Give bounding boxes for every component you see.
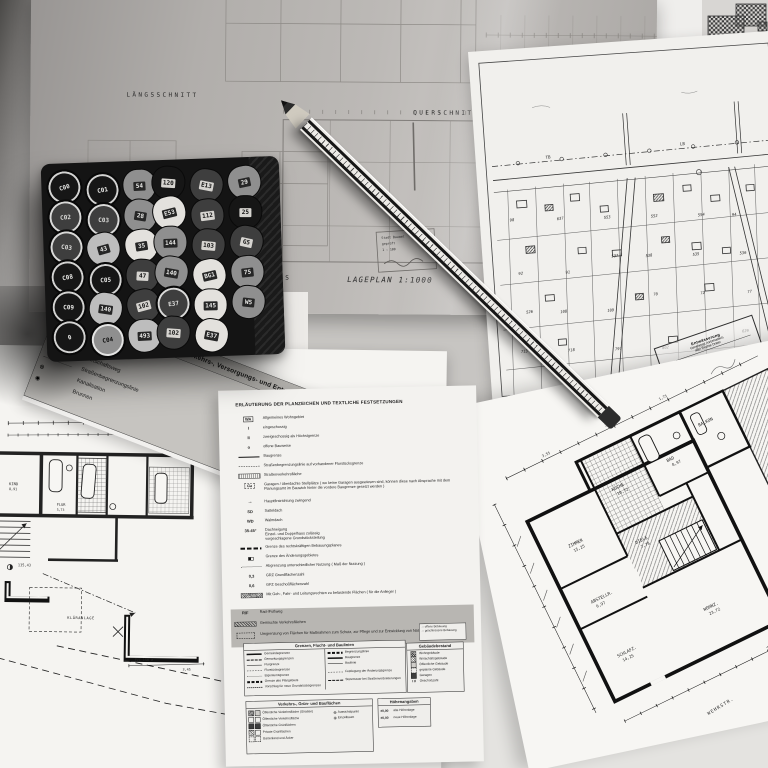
legend-label: Allgemeines Wohngebiet bbox=[263, 415, 305, 420]
minibox-bebauung: → offene Bebauung→ geschlossene Bebauung bbox=[419, 623, 466, 641]
legend-label: GFZ Geschoßflächenzahl bbox=[266, 582, 309, 587]
legend-label-line: Rad-/Fußweg bbox=[260, 609, 283, 614]
legend-label: Walmdach bbox=[265, 518, 283, 523]
parcel-number: 77 bbox=[747, 288, 753, 294]
parcel-number: 108 bbox=[560, 308, 568, 314]
grenzen-row: Stützmauer bei Straßenverbreiterungen bbox=[325, 676, 405, 683]
parcel-number: 535 bbox=[692, 251, 700, 257]
parcel-number: 70 bbox=[653, 291, 659, 297]
parcel-number: 538 bbox=[645, 252, 653, 258]
legend-label-line: Straßenverkehrsfläche bbox=[264, 472, 302, 477]
legend-symbol bbox=[237, 564, 266, 568]
parcel-number: 552 bbox=[651, 213, 659, 219]
legend-label-line: eingeschossig bbox=[263, 425, 287, 430]
legend-label-line: Satteldach bbox=[265, 508, 283, 513]
legend-symbol bbox=[234, 454, 263, 458]
legend-label: Abgrenzung unterschiedlicher Nutzung ( M… bbox=[266, 562, 365, 568]
legend-label-line: GRZ Grundflächenzahl bbox=[266, 572, 304, 577]
legend-label-line: Walmdach bbox=[265, 518, 283, 523]
legend-label-line: Grenze des rechtskräftigen Bebauungsplan… bbox=[265, 543, 341, 549]
legend-label-line: Allgemeines Wohngebiet bbox=[263, 415, 305, 420]
legend-label: eingeschossig bbox=[263, 425, 287, 430]
legend-symbol: WD bbox=[236, 518, 265, 524]
parcel-number: 554 bbox=[698, 211, 706, 217]
pipe-length: 3,45 bbox=[182, 668, 190, 672]
legend-label-line: Straßenbegrenzungslinie auf vorhandener … bbox=[264, 461, 364, 468]
table-gebaeudebestand: Gebäudebestand WohngebäudeWirtschaftsgeb… bbox=[406, 642, 464, 693]
sheet-legend: ERLÄUTERUNG DER PLANZEICHEN UND TEXTLICH… bbox=[218, 385, 484, 766]
marker-cap: C04 bbox=[87, 319, 129, 361]
street-name: WEHRSTR. bbox=[706, 696, 735, 717]
legend-symbol: 35-45° bbox=[236, 528, 265, 534]
parcel-number: 109 bbox=[607, 307, 615, 313]
table-grenzen: Grenzen, Flucht- und Baulinien Gemeindeg… bbox=[243, 640, 406, 696]
legend-symbol bbox=[231, 632, 260, 639]
legend-label-line: Baugrenze bbox=[263, 453, 281, 458]
table-verkehr: Verkehrs-, Grün- und Bauflächen Öffentli… bbox=[246, 699, 374, 755]
legend-symbol bbox=[235, 473, 264, 479]
hoehen-row: ±0,00neue Höhenlage bbox=[380, 713, 428, 721]
legend-label: Hauptfirstrichtung zwingend bbox=[264, 498, 310, 503]
parcel-number: 537 bbox=[611, 253, 619, 259]
table-hoehen: Höhenangaben ±0,00alte Höhenlage±0,00neu… bbox=[378, 697, 432, 727]
klaeranlage-label: KLÄRANLAGE bbox=[67, 615, 95, 620]
legend-label-line: zweigeschossig als Höchstgrenze bbox=[263, 434, 319, 440]
photo-architect-desk: { "top_sheet": { "label_laengsschnitt": … bbox=[0, 0, 768, 768]
legend-label: Gemischte Verkehrsflächen bbox=[260, 620, 306, 625]
legend-label-line: Abgrenzung unterschiedlicher Nutzung ( M… bbox=[266, 562, 365, 568]
legend-label: DachneigungEinzel- und Doppelhaus zuläss… bbox=[265, 527, 325, 542]
parcel-number: 637 bbox=[556, 215, 564, 221]
legend-label: Satteldach bbox=[265, 508, 283, 513]
verkehr-extra-row: ⊕Einzelbaum bbox=[333, 715, 359, 721]
legend-symbol: SD bbox=[236, 509, 265, 515]
parcel-number: 98 bbox=[509, 217, 515, 223]
parcel-number: 526 bbox=[526, 309, 534, 315]
parcel-number: 536 bbox=[739, 250, 747, 256]
legend-label-line: Hauptfirstrichtung zwingend bbox=[264, 498, 310, 503]
gebaeude-row: I IIGeschoßzahl bbox=[409, 678, 463, 685]
legend-label-line: Gemischte Verkehrsflächen bbox=[260, 620, 306, 625]
legend-label: Baugrenze bbox=[263, 453, 281, 458]
verkehr-row: Gartenland und Äcker bbox=[248, 734, 333, 742]
minibox-row: → geschlossene Bebauung bbox=[421, 628, 464, 633]
legend-label: Straßenbegrenzungslinie auf vorhandener … bbox=[264, 461, 364, 468]
legend-items: WAAllgemeines WohngebietIeingeschossigII… bbox=[234, 412, 472, 603]
marker-cap: 0 bbox=[47, 315, 92, 360]
parcel-number: 718 bbox=[568, 347, 576, 353]
legend-label: Grenze des Änderungsgebietes bbox=[266, 553, 319, 559]
street-label-left: TB bbox=[545, 154, 551, 159]
legend-symbol bbox=[237, 592, 266, 598]
legend-label: Grenze des rechtskräftigen Bebauungsplan… bbox=[265, 543, 341, 549]
street-label-right: LB bbox=[680, 141, 686, 146]
legend-label: Straßenverkehrsfläche bbox=[264, 472, 302, 477]
legend-label: Rad-/Fußweg bbox=[260, 609, 283, 614]
legend-symbol: 0,3 bbox=[237, 573, 266, 579]
room-label: KIND bbox=[9, 481, 19, 486]
legend-label: GRZ Grundflächenzahl bbox=[266, 572, 304, 577]
legend-content: ERLÄUTERUNG DER PLANZEICHEN UND TEXTLICH… bbox=[218, 385, 484, 766]
legend-symbol: → bbox=[235, 499, 264, 504]
legend-title: ERLÄUTERUNG DER PLANZEICHEN UND TEXTLICH… bbox=[235, 399, 402, 408]
legend-symbol bbox=[236, 545, 265, 550]
parcel-number: 91 bbox=[565, 269, 570, 275]
legend-label-line: Grenze des Änderungsgebietes bbox=[266, 553, 319, 559]
room-label: FLUR bbox=[57, 503, 67, 507]
parcel-number: 94 bbox=[732, 211, 738, 217]
marker-box: C00C0154120E1329C02C0328E5311225C0343351… bbox=[41, 156, 286, 362]
marker-cap: E37 bbox=[192, 315, 232, 355]
legend-label: offene Bauweise bbox=[263, 444, 291, 449]
legend-symbol: 0,6 bbox=[237, 583, 266, 589]
pipe-label: PVC 150 ⌀ bbox=[135, 658, 153, 662]
marker-cap: 102 bbox=[155, 315, 191, 351]
legend-label-line: Mit Geh-, Fahr- und Leitungsrechten zu b… bbox=[266, 590, 396, 597]
legend-label-line: vorgeschlagene Grundstücksteilung bbox=[265, 535, 325, 541]
legend-symbol bbox=[231, 621, 260, 627]
legend-symbol: WA bbox=[234, 416, 263, 423]
legend-symbol: Ga bbox=[235, 482, 264, 489]
parcel-number: 553 bbox=[603, 214, 611, 220]
level-label: 135,43 bbox=[18, 563, 31, 567]
legend-label: zweigeschossig als Höchstgrenze bbox=[263, 434, 319, 440]
legend-symbol: o bbox=[234, 444, 263, 450]
grenzen-row: Vorschlag für neue Grundstücksgrenzen bbox=[245, 683, 325, 690]
legend-symbol: II bbox=[234, 435, 263, 441]
legend-label-line: offene Bauweise bbox=[263, 444, 291, 449]
room-area: 8,91 bbox=[9, 487, 17, 491]
legend-label-line: GFZ Geschoßflächenzahl bbox=[266, 582, 309, 587]
legend-symbol bbox=[237, 554, 266, 561]
legend-symbol: R/F bbox=[231, 610, 260, 616]
legend-symbol: I bbox=[234, 425, 263, 431]
room-area: 5,73 bbox=[57, 508, 65, 512]
legend-label: Mit Geh-, Fahr- und Leitungsrechten zu b… bbox=[266, 590, 396, 597]
legend-symbol bbox=[235, 463, 264, 467]
parcel-number: 92 bbox=[518, 270, 524, 276]
